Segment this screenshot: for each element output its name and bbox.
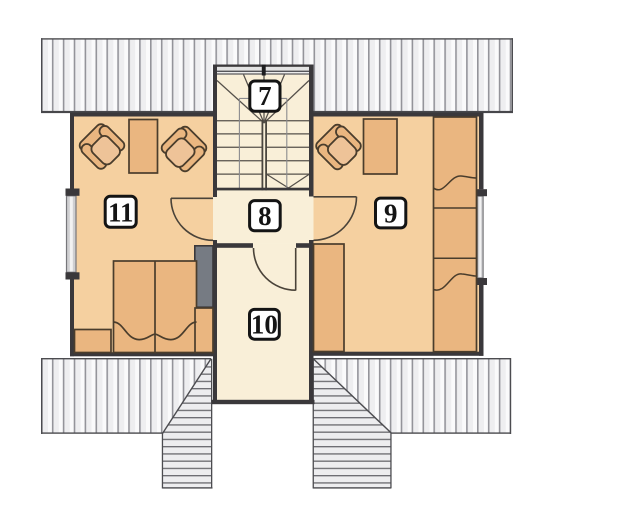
svg-text:7: 7 <box>258 81 272 111</box>
svg-text:9: 9 <box>384 199 398 229</box>
svg-text:8: 8 <box>258 201 272 231</box>
svg-text:11: 11 <box>108 198 134 228</box>
svg-text:10: 10 <box>251 309 278 339</box>
